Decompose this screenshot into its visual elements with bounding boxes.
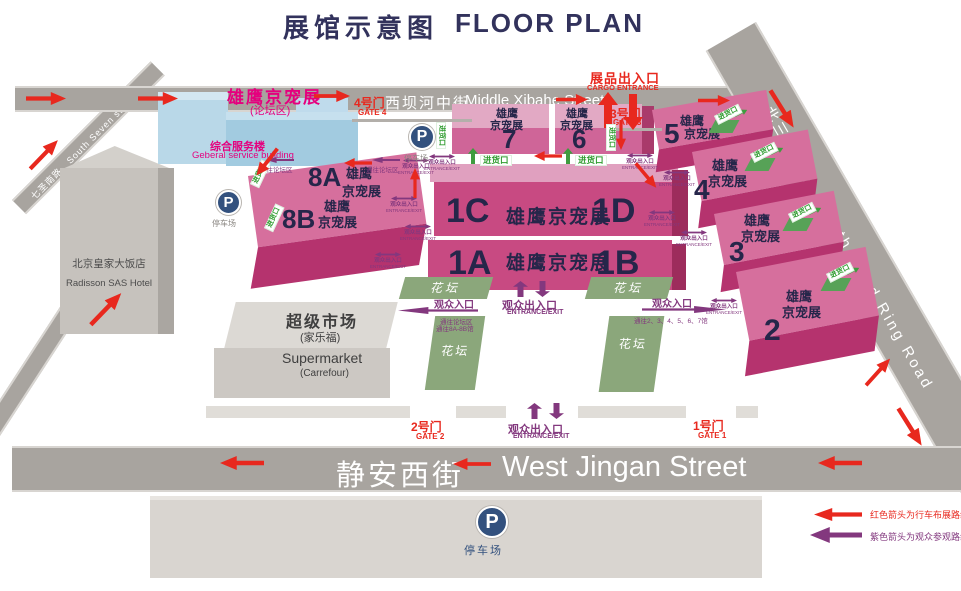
visitor-entrance-exit-chip: 观众出入口ENTRANCE/EXIT: [655, 170, 699, 187]
supermarket-label-en: Supermarket: [282, 350, 362, 366]
hall6-number: 6: [572, 124, 586, 155]
loading-entrance-chip: 进货口: [606, 124, 616, 151]
hall7-number: 7: [502, 124, 516, 155]
parking-icon: P: [476, 506, 508, 538]
hall8a-number: 8A: [308, 162, 341, 193]
visitor-entrance-exit-chip: 观众出入口ENTRANCE/EXIT: [640, 210, 684, 227]
hall1c-number: 1C: [446, 192, 489, 231]
gate4-label-en: GATE 4: [358, 108, 386, 117]
parking-label: 停车场: [404, 153, 428, 164]
legend-red-text: 红色箭头为行车布展路线: [870, 508, 961, 521]
to-2-7-note: 通往2、3、4、5、6、7馆: [634, 315, 708, 325]
road-jingan-label-en: West Jingan Street: [502, 451, 746, 484]
loading-entrance-chip: 进货口: [575, 155, 607, 166]
hall3-number: 3: [729, 236, 745, 268]
supermarket-label-en2: (Carrefour): [300, 368, 349, 379]
page-title-zh: 展馆示意图: [283, 8, 438, 45]
hall-76-gap: [549, 104, 555, 154]
hotel-label-zh: 北京皇家大饭店: [64, 256, 154, 271]
loading-entrance-chip: 进货口: [480, 155, 512, 166]
loading-entrance-chip: 进货口: [436, 122, 446, 149]
visitor-in-left-label: 观众入口: [434, 296, 474, 311]
hall3-brand-l2: 京宠展: [741, 226, 780, 245]
to-8ab-note: 通往8A-8B馆: [436, 323, 474, 333]
cargo-entrance-label-en: CARGO ENTRANCE: [587, 83, 659, 92]
hall2-number: 2: [764, 314, 781, 348]
hall2-brand-l2: 京宠展: [782, 302, 821, 321]
visitor-entrance-exit-chip: 观众出入口ENTRANCE/EXIT: [382, 196, 426, 213]
hall4-brand-l2: 京宠展: [708, 171, 747, 190]
center-entrance-opening: [506, 404, 578, 420]
visitor-entrance-exit-chip: 观众出入口ENTRANCE/EXIT: [396, 224, 440, 241]
hotel-label-en: Radisson SAS Hotel: [60, 278, 158, 289]
forum-banner-area: (论坛区): [250, 102, 290, 118]
supermarket-label-zh2: (家乐福): [300, 329, 340, 345]
gate1-label-en: GATE 1: [698, 431, 726, 440]
visitor-entrance-exit-chip: 观众出入口ENTRANCE/EXIT: [702, 298, 746, 315]
flowerbed: 花坛: [599, 316, 665, 392]
road-jingan-label-zh: 静安西街: [336, 452, 464, 494]
parking-icon: P: [409, 124, 435, 150]
visitor-entrance-exit-en: ENTRANCE/EXIT: [507, 309, 563, 316]
hall1d-number: 1D: [592, 192, 635, 231]
visitor-entrance-exit-chip: 观众出入口ENTRANCE/EXIT: [672, 230, 716, 247]
road-jingan: [12, 446, 961, 492]
boundary-wall: [206, 406, 758, 418]
parking-icon: P: [216, 190, 241, 215]
hall8b-brand-l2: 京宠展: [318, 212, 357, 231]
legend-red-arrow: [814, 508, 862, 521]
hall5-number: 5: [664, 118, 680, 150]
hotel-building-side: [158, 168, 174, 334]
parking-lot: [150, 496, 762, 578]
legend-purple-text: 紫色箭头为观众参观路线: [870, 530, 961, 543]
parking-label: 停车场: [464, 542, 503, 558]
visitor-entrance-exit-en: ENTRANCE/EXIT: [513, 433, 569, 440]
hall8b-number: 8B: [282, 204, 315, 235]
hall-1ab-side: [672, 244, 686, 290]
legend-purple-arrow: [810, 527, 862, 543]
parking-label: 停车场: [212, 218, 236, 229]
visitor-in-right-label: 观众入口: [652, 295, 692, 310]
visitor-entrance-exit-chip: 观众出入口ENTRANCE/EXIT: [366, 252, 410, 269]
route-arrow-red: [861, 355, 894, 390]
page-title-en: FLOOR PLAN: [455, 8, 644, 39]
gate2-label-en: GATE 2: [416, 432, 444, 441]
gate4-bar: [352, 119, 472, 122]
floor-plan-map: 展馆示意图 FLOOR PLAN 七圣南路 South Seven st Roa…: [0, 0, 961, 591]
